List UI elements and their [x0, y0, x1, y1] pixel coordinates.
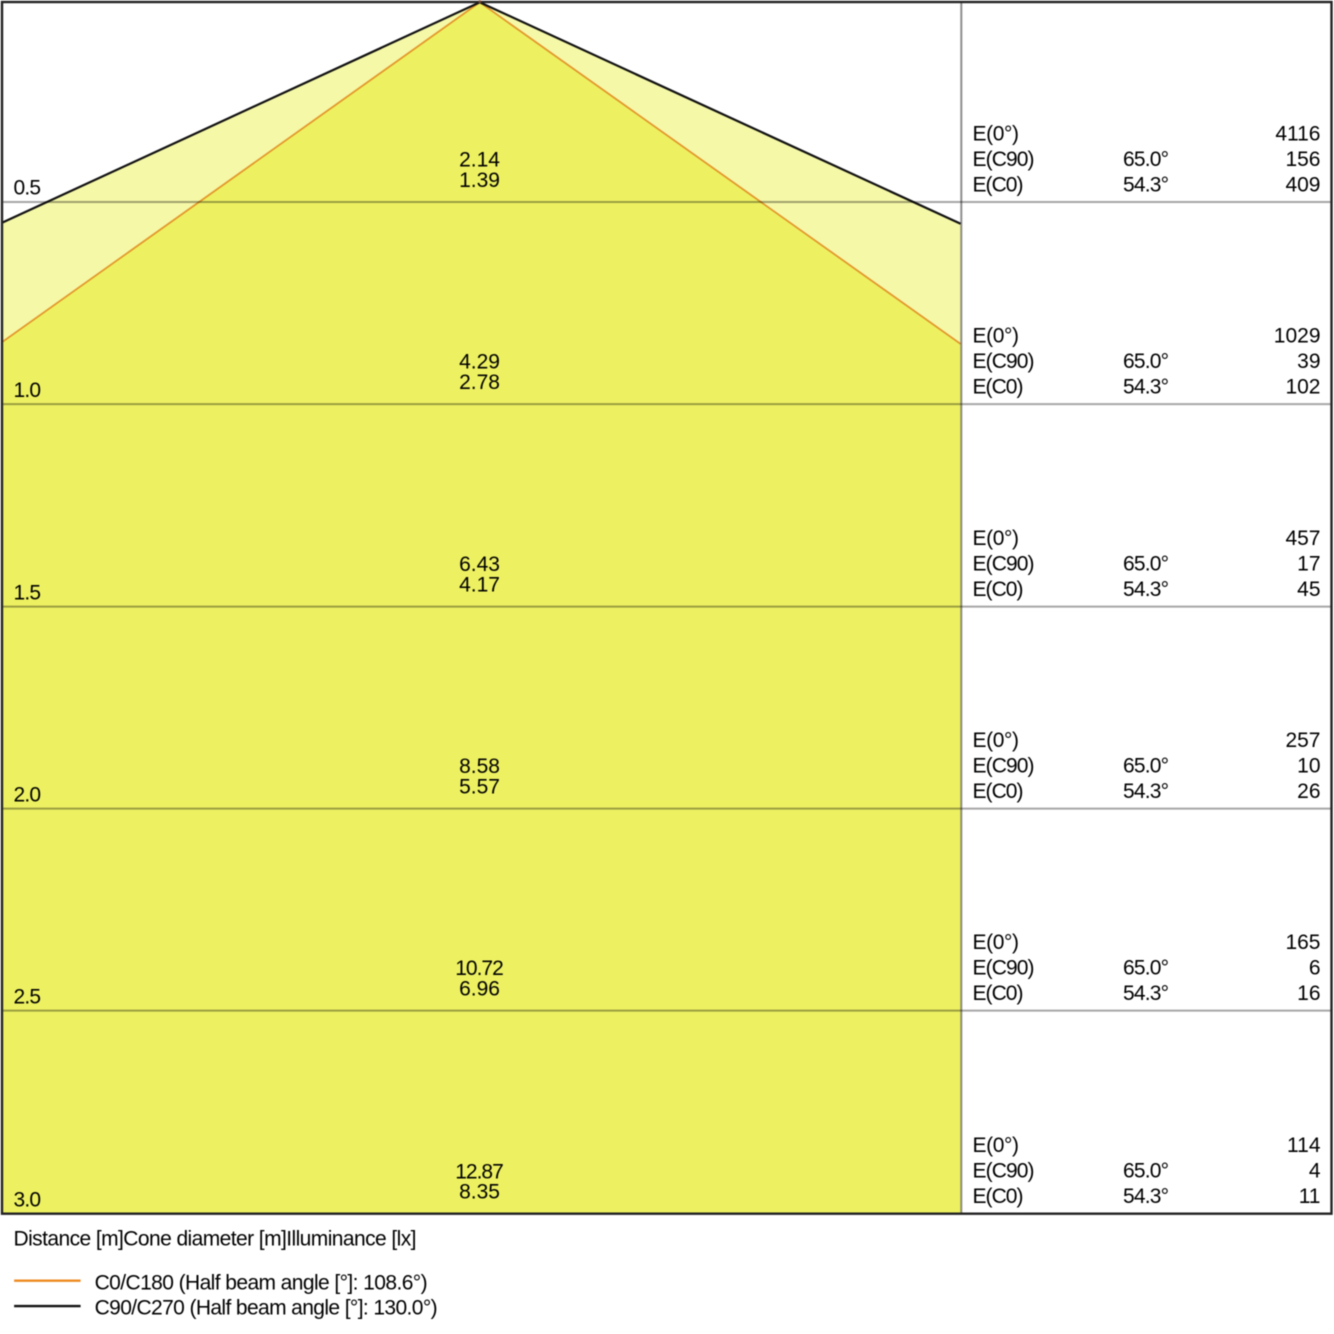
svg-text:1.39: 1.39: [459, 169, 500, 192]
svg-text:0.5: 0.5: [14, 177, 42, 200]
svg-text:257: 257: [1285, 729, 1320, 752]
svg-text:6.96: 6.96: [459, 978, 500, 1001]
svg-text:65.0°: 65.0°: [1123, 148, 1169, 171]
svg-text:C90/C270 (Half beam angle [°]:: C90/C270 (Half beam angle [°]: 130.0°): [95, 1297, 438, 1320]
svg-text:E(C0): E(C0): [973, 578, 1024, 601]
svg-text:54.3°: 54.3°: [1123, 780, 1169, 803]
svg-text:E(0°): E(0°): [973, 729, 1020, 752]
svg-text:E(C0): E(C0): [973, 173, 1024, 196]
svg-text:E(C90): E(C90): [973, 754, 1035, 777]
svg-text:45: 45: [1297, 578, 1320, 601]
svg-text:11: 11: [1299, 1185, 1321, 1208]
svg-text:5.57: 5.57: [459, 776, 500, 799]
svg-text:65.0°: 65.0°: [1123, 552, 1169, 575]
svg-text:E(C0): E(C0): [973, 982, 1024, 1005]
svg-text:54.3°: 54.3°: [1123, 982, 1169, 1005]
svg-text:16: 16: [1297, 982, 1320, 1005]
svg-text:Distance [m]Cone diameter [m]I: Distance [m]Cone diameter [m]Illuminance…: [14, 1228, 417, 1251]
svg-text:409: 409: [1285, 173, 1320, 196]
svg-text:54.3°: 54.3°: [1123, 578, 1169, 601]
svg-text:4.17: 4.17: [459, 574, 500, 597]
svg-text:E(0°): E(0°): [973, 527, 1020, 550]
svg-text:54.3°: 54.3°: [1123, 1185, 1169, 1208]
svg-text:E(C90): E(C90): [973, 1160, 1035, 1183]
svg-text:E(0°): E(0°): [973, 122, 1020, 145]
svg-text:E(C90): E(C90): [973, 956, 1035, 979]
svg-text:114: 114: [1287, 1134, 1321, 1157]
svg-text:6: 6: [1309, 956, 1321, 979]
svg-text:10: 10: [1297, 754, 1320, 777]
svg-text:1.5: 1.5: [14, 581, 42, 604]
svg-text:2.5: 2.5: [14, 985, 42, 1008]
svg-text:65.0°: 65.0°: [1123, 1160, 1169, 1183]
svg-text:156: 156: [1285, 148, 1320, 171]
svg-text:4116: 4116: [1275, 122, 1320, 145]
svg-text:E(0°): E(0°): [973, 324, 1020, 347]
svg-text:54.3°: 54.3°: [1123, 173, 1169, 196]
svg-text:2.78: 2.78: [459, 371, 500, 394]
svg-text:E(C90): E(C90): [973, 148, 1035, 171]
svg-text:65.0°: 65.0°: [1123, 754, 1169, 777]
svg-text:E(0°): E(0°): [973, 1134, 1020, 1157]
svg-text:E(C0): E(C0): [973, 375, 1024, 398]
svg-text:E(C0): E(C0): [973, 1185, 1024, 1208]
svg-text:65.0°: 65.0°: [1123, 350, 1169, 373]
svg-text:26: 26: [1297, 780, 1320, 803]
svg-text:C0/C180 (Half beam angle [°]:: C0/C180 (Half beam angle [°]: 108.6°): [95, 1271, 428, 1294]
svg-text:457: 457: [1285, 527, 1320, 550]
svg-text:E(C90): E(C90): [973, 350, 1035, 373]
svg-text:4: 4: [1309, 1160, 1321, 1183]
svg-text:E(C0): E(C0): [973, 780, 1024, 803]
svg-text:54.3°: 54.3°: [1123, 375, 1169, 398]
svg-text:E(0°): E(0°): [973, 931, 1020, 954]
svg-text:165: 165: [1285, 931, 1320, 954]
svg-text:102: 102: [1285, 375, 1320, 398]
svg-text:17: 17: [1297, 552, 1320, 575]
svg-text:3.0: 3.0: [14, 1188, 42, 1211]
svg-text:1029: 1029: [1274, 324, 1321, 347]
svg-text:E(C90): E(C90): [973, 552, 1035, 575]
svg-text:65.0°: 65.0°: [1123, 956, 1169, 979]
svg-text:1.0: 1.0: [14, 379, 42, 402]
svg-text:39: 39: [1297, 350, 1320, 373]
svg-text:2.0: 2.0: [14, 783, 42, 806]
svg-text:8.35: 8.35: [459, 1181, 500, 1204]
